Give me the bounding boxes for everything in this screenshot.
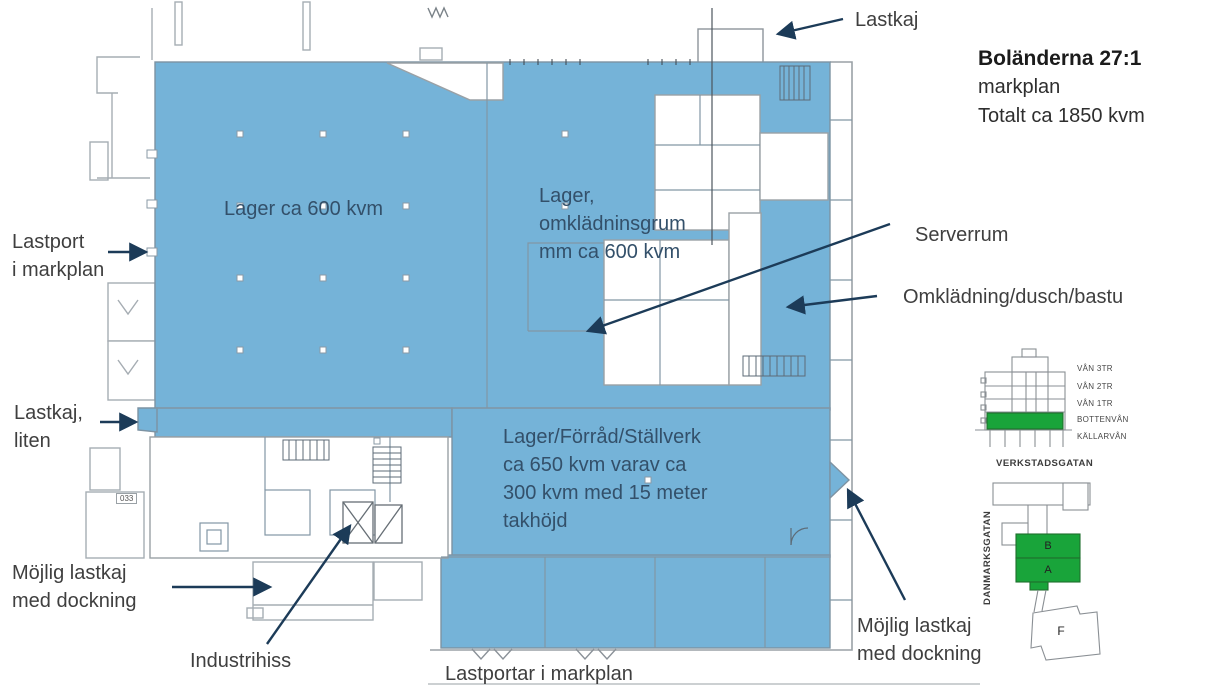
- plan-name: markplan: [978, 73, 1145, 102]
- area-label-lager-omkladning: Lager, omklädninsgrum mm ca 600 kvm: [539, 182, 686, 266]
- section-diagram: [975, 349, 1072, 447]
- street-label-danmarksgatan: DANMARKSGATAN: [982, 511, 993, 605]
- floor-label-kallarvan: KÄLLARVÅN: [1077, 432, 1127, 441]
- area-label-lager: Lager ca 600 kvm: [224, 195, 383, 223]
- callout-mojlig-lastkaj-right: Möjlig lastkaj med dockning: [857, 612, 982, 668]
- arrow-lastkaj-top: [778, 19, 843, 34]
- street-label-verkstadsgatan: VERKSTADSGATAN: [996, 458, 1093, 469]
- callout-lastkaj-top: Lastkaj: [855, 6, 918, 34]
- section-highlight-bottenvan: [987, 413, 1063, 429]
- total-area: Totalt ca 1850 kvm: [978, 102, 1145, 131]
- callout-serverrum: Serverrum: [915, 221, 1008, 249]
- site-label-a: A: [1016, 564, 1080, 576]
- area-label-stallverk: Lager/Förråd/Ställverk ca 650 kvm varav …: [503, 423, 708, 535]
- callout-lastportar: Lastportar i markplan: [445, 660, 633, 686]
- property-name: Boländerna 27:1: [978, 44, 1145, 73]
- callout-omkladning: Omklädning/dusch/bastu: [903, 283, 1123, 311]
- callout-mojlig-lastkaj-left: Möjlig lastkaj med dockning: [12, 559, 137, 615]
- room-tag-033: 033: [116, 493, 137, 504]
- callout-industrihiss: Industrihiss: [190, 647, 291, 675]
- floor-label-bottenvan: BOTTENVÅN: [1077, 415, 1129, 424]
- floor-label-van2tr: VÅN 2TR: [1077, 382, 1113, 391]
- floor-label-van1tr: VÅN 1TR: [1077, 399, 1113, 408]
- callout-lastport: Lastport i markplan: [12, 228, 104, 284]
- industrihiss-icon: [343, 502, 402, 543]
- callout-lastkaj-liten: Lastkaj, liten: [14, 399, 83, 455]
- plan-title-block: Boländerna 27:1 markplan Totalt ca 1850 …: [978, 44, 1145, 131]
- floor-label-van3tr: VÅN 3TR: [1077, 364, 1113, 373]
- site-label-f: F: [1046, 624, 1076, 638]
- arrow-mojlig-right: [848, 490, 905, 600]
- site-label-b: B: [1016, 540, 1080, 552]
- floorplan-page: Boländerna 27:1 markplan Totalt ca 1850 …: [0, 0, 1220, 686]
